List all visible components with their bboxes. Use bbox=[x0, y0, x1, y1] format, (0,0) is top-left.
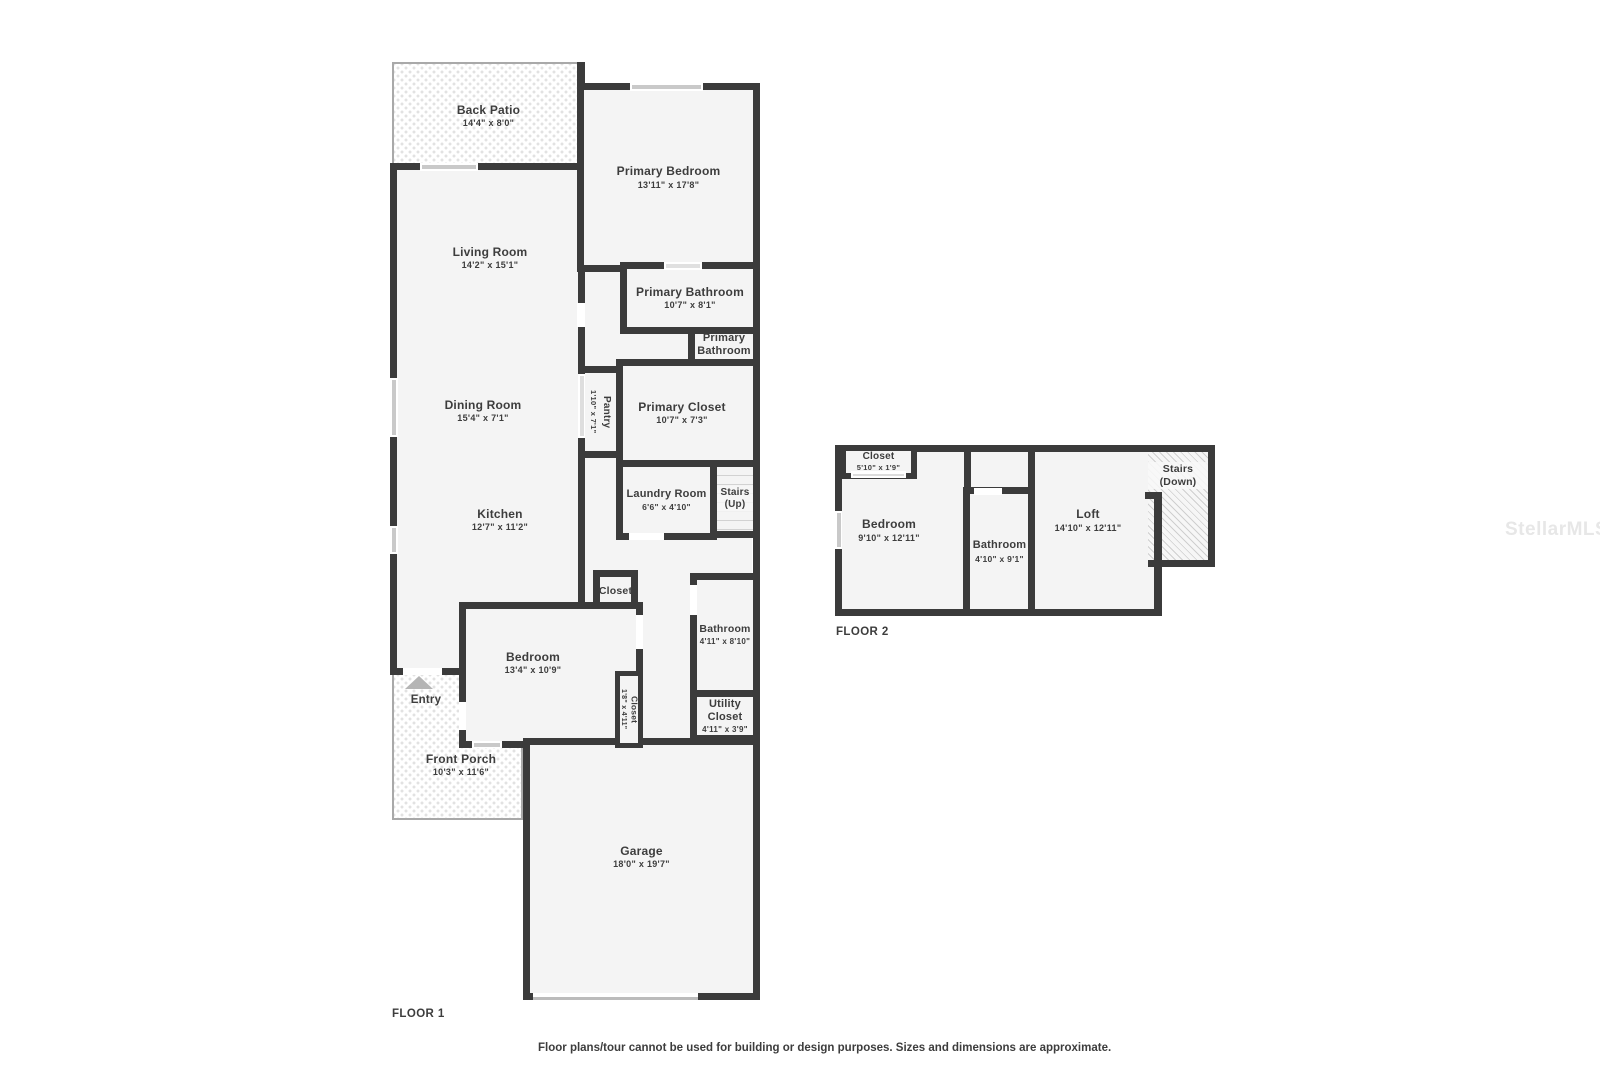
room-label-front-porch: Front Porch 10'3" x 11'6" bbox=[426, 752, 496, 778]
door-opening bbox=[690, 585, 697, 615]
room-f2-bathroom: Bathroom 4'10" x 9'1" bbox=[963, 487, 1036, 616]
room-laundry: Laundry Room 6'6" x 4'10" bbox=[616, 460, 717, 540]
door-opening bbox=[629, 533, 664, 540]
room-label: Laundry Room 6'6" x 4'10" bbox=[626, 488, 706, 512]
room-primary-closet: Primary Closet 10'7" x 7'3" bbox=[616, 359, 760, 467]
door-opening bbox=[636, 615, 643, 649]
entry-arrow-icon bbox=[405, 676, 433, 689]
room-back-patio: Back Patio 14'4" x 8'0" bbox=[392, 62, 585, 170]
room-primary-bathroom: Primary Bathroom 10'7" x 8'1" bbox=[620, 262, 760, 334]
garage-door bbox=[533, 997, 698, 1000]
room-f2-loft: Loft 14'10" x 12'11" bbox=[1028, 445, 1161, 616]
room-label: Primary Bedroom 13'11" x 17'8" bbox=[617, 164, 721, 190]
door-opening bbox=[664, 262, 702, 270]
stellar-mls-watermark: StellarMLS bbox=[1505, 519, 1600, 541]
wall-segment bbox=[577, 62, 585, 90]
room-label: Loft 14'10" x 12'11" bbox=[1055, 507, 1122, 533]
room-closet-bedroom: Closet 1'8" x 4'11" bbox=[615, 671, 643, 748]
wall-segment bbox=[753, 530, 760, 580]
window bbox=[390, 526, 398, 554]
room-label: Closet bbox=[599, 585, 632, 598]
window bbox=[630, 83, 703, 91]
room-label: Bedroom 13'4" x 10'9" bbox=[505, 650, 562, 676]
wall-segment bbox=[1154, 492, 1162, 616]
room-label: Primary Closet 10'7" x 7'3" bbox=[638, 400, 726, 426]
room-label: Closet 1'8" x 4'11" bbox=[619, 689, 640, 729]
door-opening bbox=[578, 374, 585, 438]
floor1-label: FLOOR 1 bbox=[392, 1008, 445, 1020]
room-primary-bedroom: Primary Bedroom 13'11" x 17'8" bbox=[577, 83, 760, 272]
room-label: Pantry 1'10" x 7'1" bbox=[589, 390, 612, 433]
window bbox=[472, 741, 502, 748]
room-label: Bathroom 4'11" x 8'10" bbox=[699, 623, 750, 646]
door-opening bbox=[577, 303, 585, 327]
room-label: Back Patio 14'4" x 8'0" bbox=[457, 103, 520, 129]
room-bathroom: Bathroom 4'11" x 8'10" bbox=[690, 573, 760, 697]
wall-segment bbox=[965, 445, 1035, 452]
room-label: Utility Closet 4'11" x 3'9" bbox=[697, 698, 753, 735]
door-opening bbox=[851, 471, 906, 478]
floor2-label: FLOOR 2 bbox=[836, 626, 889, 638]
door-opening bbox=[974, 488, 1002, 495]
room-label: Primary Bathroom 10'7" x 8'1" bbox=[636, 285, 744, 311]
room-label-living: Living Room 14'2" x 15'1" bbox=[453, 245, 528, 271]
room-utility-closet: Utility Closet 4'11" x 3'9" bbox=[690, 690, 760, 742]
room-label-dining: Dining Room 15'4" x 7'1" bbox=[445, 398, 522, 424]
room-garage: Garage 18'0" x 19'7" bbox=[523, 738, 760, 1000]
door-opening bbox=[459, 702, 466, 730]
room-label: Bedroom 9'10" x 12'11" bbox=[858, 517, 920, 543]
disclaimer-text: Floor plans/tour cannot be used for buil… bbox=[538, 1042, 1111, 1054]
room-label: Stairs (Down) bbox=[1148, 462, 1208, 489]
window bbox=[835, 511, 842, 549]
room-label: Garage 18'0" x 19'7" bbox=[613, 844, 670, 870]
sliding-door bbox=[420, 163, 478, 171]
room-label: Closet 5'10" x 1'9" bbox=[857, 452, 900, 472]
window bbox=[390, 378, 398, 437]
room-stairs-up: Stairs (Up) bbox=[710, 460, 760, 538]
floorplan-canvas: Back Patio 14'4" x 8'0" Primary Bedroom … bbox=[0, 0, 1600, 1066]
room-label-kitchen: Kitchen 12'7" x 11'2" bbox=[472, 507, 528, 533]
room-label: Stairs (Up) bbox=[717, 486, 753, 512]
room-label: Bathroom 4'10" x 9'1" bbox=[973, 539, 1027, 563]
entry-opening bbox=[403, 668, 442, 675]
room-label-entry: Entry bbox=[411, 694, 441, 708]
